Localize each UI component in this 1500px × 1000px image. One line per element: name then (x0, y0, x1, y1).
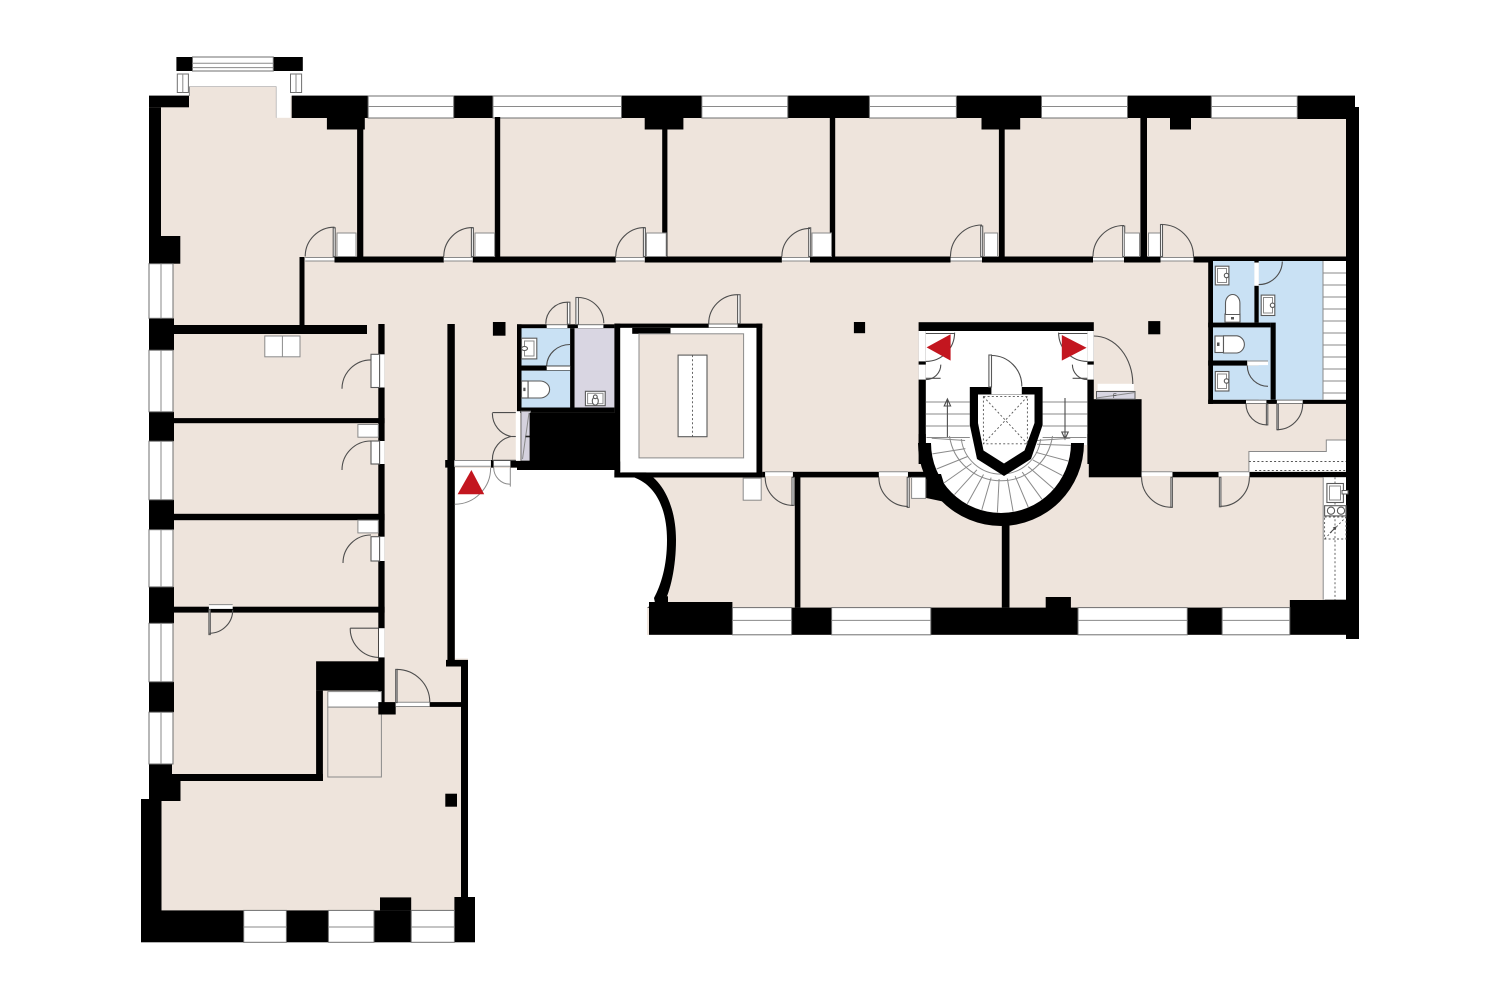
svg-text:F: F (1113, 394, 1117, 400)
